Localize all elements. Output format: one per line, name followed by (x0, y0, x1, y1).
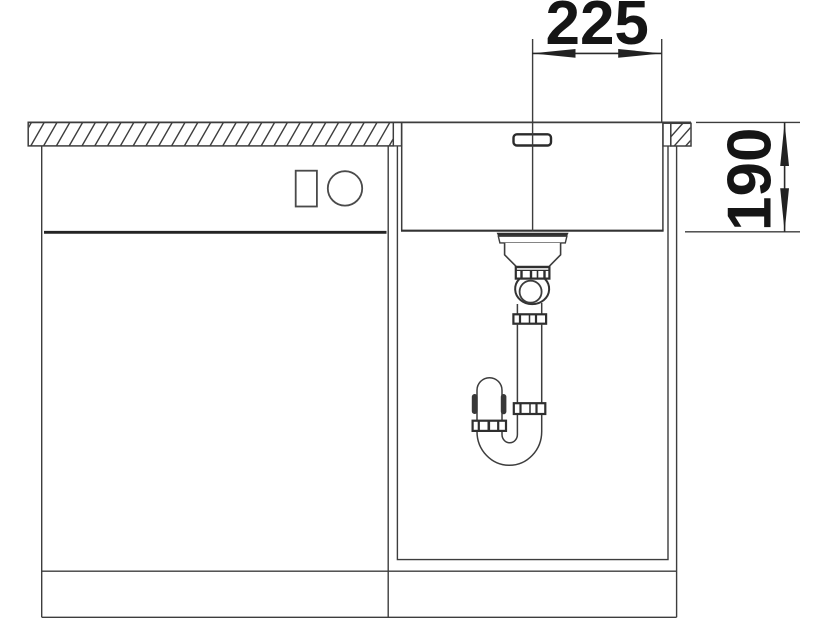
svg-text:225: 225 (545, 0, 648, 58)
svg-text:190: 190 (716, 128, 785, 231)
